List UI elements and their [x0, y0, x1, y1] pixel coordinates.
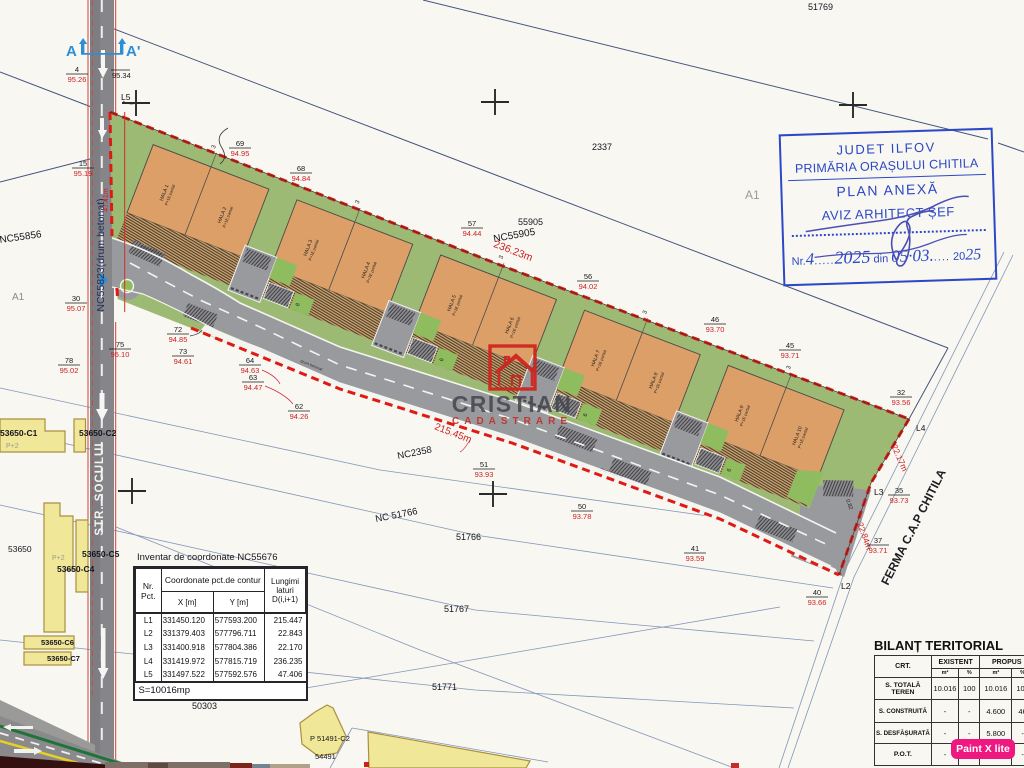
- svg-text:93.59: 93.59: [686, 554, 705, 563]
- svg-text:68: 68: [297, 164, 305, 173]
- svg-text:78: 78: [65, 356, 73, 365]
- svg-text:55905: 55905: [518, 217, 543, 227]
- svg-text:94.61: 94.61: [174, 357, 193, 366]
- svg-text:P+2: P+2: [52, 555, 65, 562]
- svg-text:53650-C1: 53650-C1: [0, 428, 38, 438]
- svg-text:94.02: 94.02: [579, 282, 598, 291]
- svg-text:L5: L5: [121, 92, 131, 102]
- svg-text:46: 46: [711, 315, 719, 324]
- svg-text:A: A: [66, 43, 77, 60]
- svg-text:93.71: 93.71: [781, 351, 800, 360]
- svg-text:CADASTRARE: CADASTRARE: [452, 416, 572, 427]
- svg-text:L2: L2: [841, 581, 851, 591]
- svg-text:64: 64: [246, 356, 254, 365]
- svg-text:93.66: 93.66: [808, 598, 827, 607]
- svg-text:63: 63: [249, 373, 257, 382]
- svg-text:4: 4: [75, 65, 79, 74]
- svg-text:3: 3: [786, 365, 793, 371]
- svg-text:STR. SOCULUI: STR. SOCULUI: [94, 442, 106, 535]
- svg-text:53650-C2: 53650-C2: [79, 428, 117, 438]
- svg-text:3: 3: [499, 254, 506, 260]
- svg-text:22.17m: 22.17m: [889, 443, 910, 473]
- svg-text:94.95: 94.95: [231, 149, 250, 158]
- svg-text:94.85: 94.85: [169, 335, 188, 344]
- svg-text:32: 32: [897, 388, 905, 397]
- svg-text:51769: 51769: [808, 2, 833, 12]
- svg-text:53650-C5: 53650-C5: [82, 549, 120, 559]
- svg-text:NC55856: NC55856: [0, 229, 43, 246]
- svg-text:95.10: 95.10: [111, 350, 130, 359]
- svg-text:51: 51: [480, 460, 488, 469]
- svg-text:L4: L4: [916, 423, 926, 433]
- svg-text:40: 40: [813, 588, 821, 597]
- svg-text:3: 3: [355, 199, 362, 205]
- svg-text:35: 35: [895, 486, 903, 495]
- svg-text:L3: L3: [874, 487, 884, 497]
- svg-text:53650-C7: 53650-C7: [47, 654, 80, 663]
- svg-text:51766: 51766: [456, 532, 481, 542]
- svg-text:NC55905: NC55905: [493, 227, 537, 245]
- svg-text:53650-C4: 53650-C4: [57, 564, 95, 574]
- svg-text:A': A': [126, 43, 140, 60]
- svg-text:NC2358: NC2358: [396, 444, 432, 461]
- svg-text:CRISTIAN: CRISTIAN: [452, 391, 573, 417]
- svg-text:56: 56: [584, 272, 592, 281]
- svg-text:93.78: 93.78: [573, 512, 592, 521]
- svg-text:NC 51766: NC 51766: [374, 506, 418, 525]
- svg-text:75: 75: [116, 340, 124, 349]
- svg-text:69: 69: [236, 139, 244, 148]
- svg-text:51771: 51771: [432, 682, 457, 692]
- svg-text:95.02: 95.02: [60, 366, 79, 375]
- svg-text:53650-C6: 53650-C6: [41, 638, 74, 647]
- svg-text:62: 62: [295, 402, 303, 411]
- svg-text:A1: A1: [745, 188, 760, 202]
- svg-text:15: 15: [79, 159, 87, 168]
- svg-text:93.56: 93.56: [892, 398, 911, 407]
- svg-text:3: 3: [211, 144, 218, 150]
- svg-text:NC55823(drum betonat): NC55823(drum betonat): [95, 198, 107, 311]
- svg-text:A1: A1: [12, 292, 25, 303]
- svg-text:95.34: 95.34: [112, 71, 131, 80]
- svg-text:73: 73: [179, 347, 187, 356]
- svg-text:47.41m: 47.41m: [103, 188, 110, 212]
- svg-text:P 51491-C2: P 51491-C2: [310, 734, 350, 743]
- svg-text:72: 72: [174, 325, 182, 334]
- svg-text:50: 50: [578, 502, 586, 511]
- svg-text:54491: 54491: [315, 752, 336, 761]
- svg-text:93.93: 93.93: [475, 470, 494, 479]
- svg-text:41: 41: [691, 544, 699, 553]
- svg-text:95.07: 95.07: [67, 304, 86, 313]
- svg-text:Inventar de coordonate NC55676: Inventar de coordonate NC55676: [137, 552, 278, 563]
- svg-text:P+2: P+2: [6, 443, 19, 450]
- svg-text:50303: 50303: [192, 701, 217, 711]
- svg-text:2337: 2337: [592, 142, 612, 152]
- svg-text:94.84: 94.84: [292, 174, 311, 183]
- svg-text:93.70: 93.70: [706, 325, 725, 334]
- svg-text:37: 37: [874, 536, 882, 545]
- svg-text:93.71: 93.71: [869, 546, 888, 555]
- svg-text:94.26: 94.26: [290, 412, 309, 421]
- svg-text:53650: 53650: [8, 544, 32, 554]
- svg-text:95.26: 95.26: [68, 75, 87, 84]
- svg-text:51767: 51767: [444, 604, 469, 614]
- svg-text:94.47: 94.47: [244, 383, 263, 392]
- svg-text:30: 30: [72, 294, 80, 303]
- svg-text:57: 57: [468, 219, 476, 228]
- svg-text:95.19: 95.19: [74, 169, 93, 178]
- svg-text:45: 45: [786, 341, 794, 350]
- svg-text:FERMA C.A.P CHITILA: FERMA C.A.P CHITILA: [878, 467, 949, 588]
- svg-text:93.73: 93.73: [890, 496, 909, 505]
- svg-text:3: 3: [642, 309, 649, 315]
- svg-text:94.44: 94.44: [463, 229, 482, 238]
